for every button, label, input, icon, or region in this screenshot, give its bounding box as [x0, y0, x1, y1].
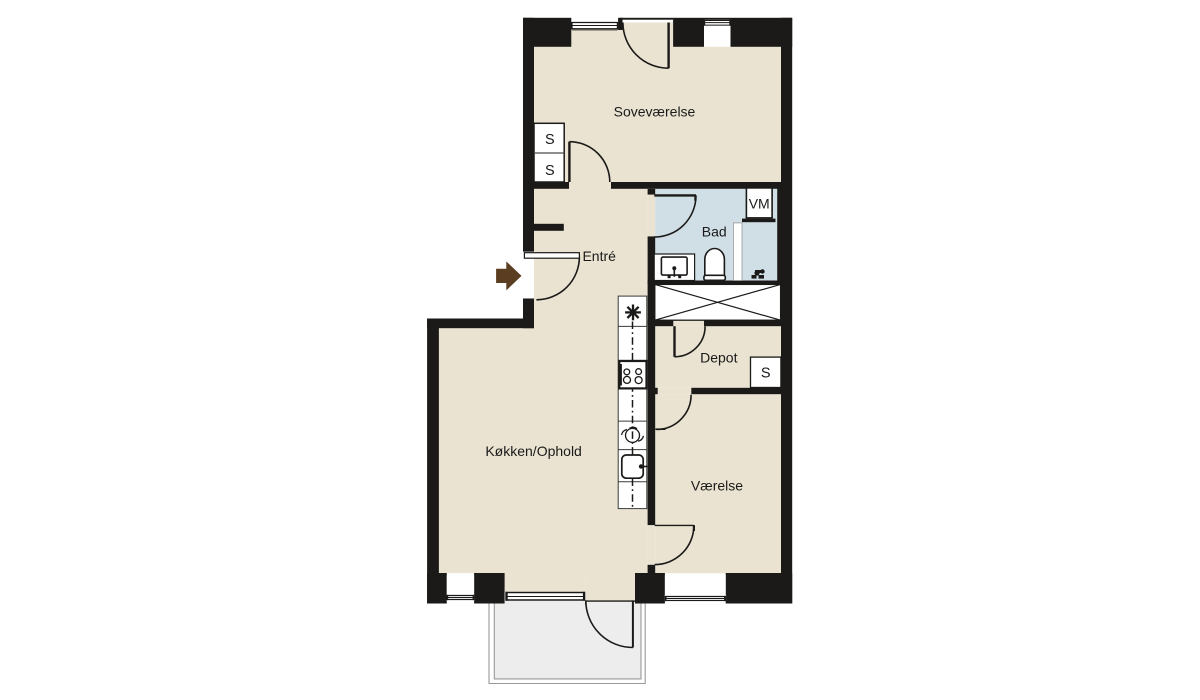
svg-text:Køkken/Ophold: Køkken/Ophold: [485, 443, 582, 459]
svg-text:Værelse: Værelse: [691, 478, 743, 494]
svg-text:S: S: [545, 163, 555, 179]
svg-text:S: S: [761, 365, 771, 381]
svg-text:Soveværelse: Soveværelse: [614, 104, 696, 120]
svg-text:Depot: Depot: [700, 350, 737, 366]
svg-text:Entré: Entré: [582, 248, 616, 264]
svg-text:S: S: [545, 132, 555, 148]
svg-text:Bad: Bad: [702, 224, 727, 240]
svg-text:VM: VM: [749, 196, 770, 212]
